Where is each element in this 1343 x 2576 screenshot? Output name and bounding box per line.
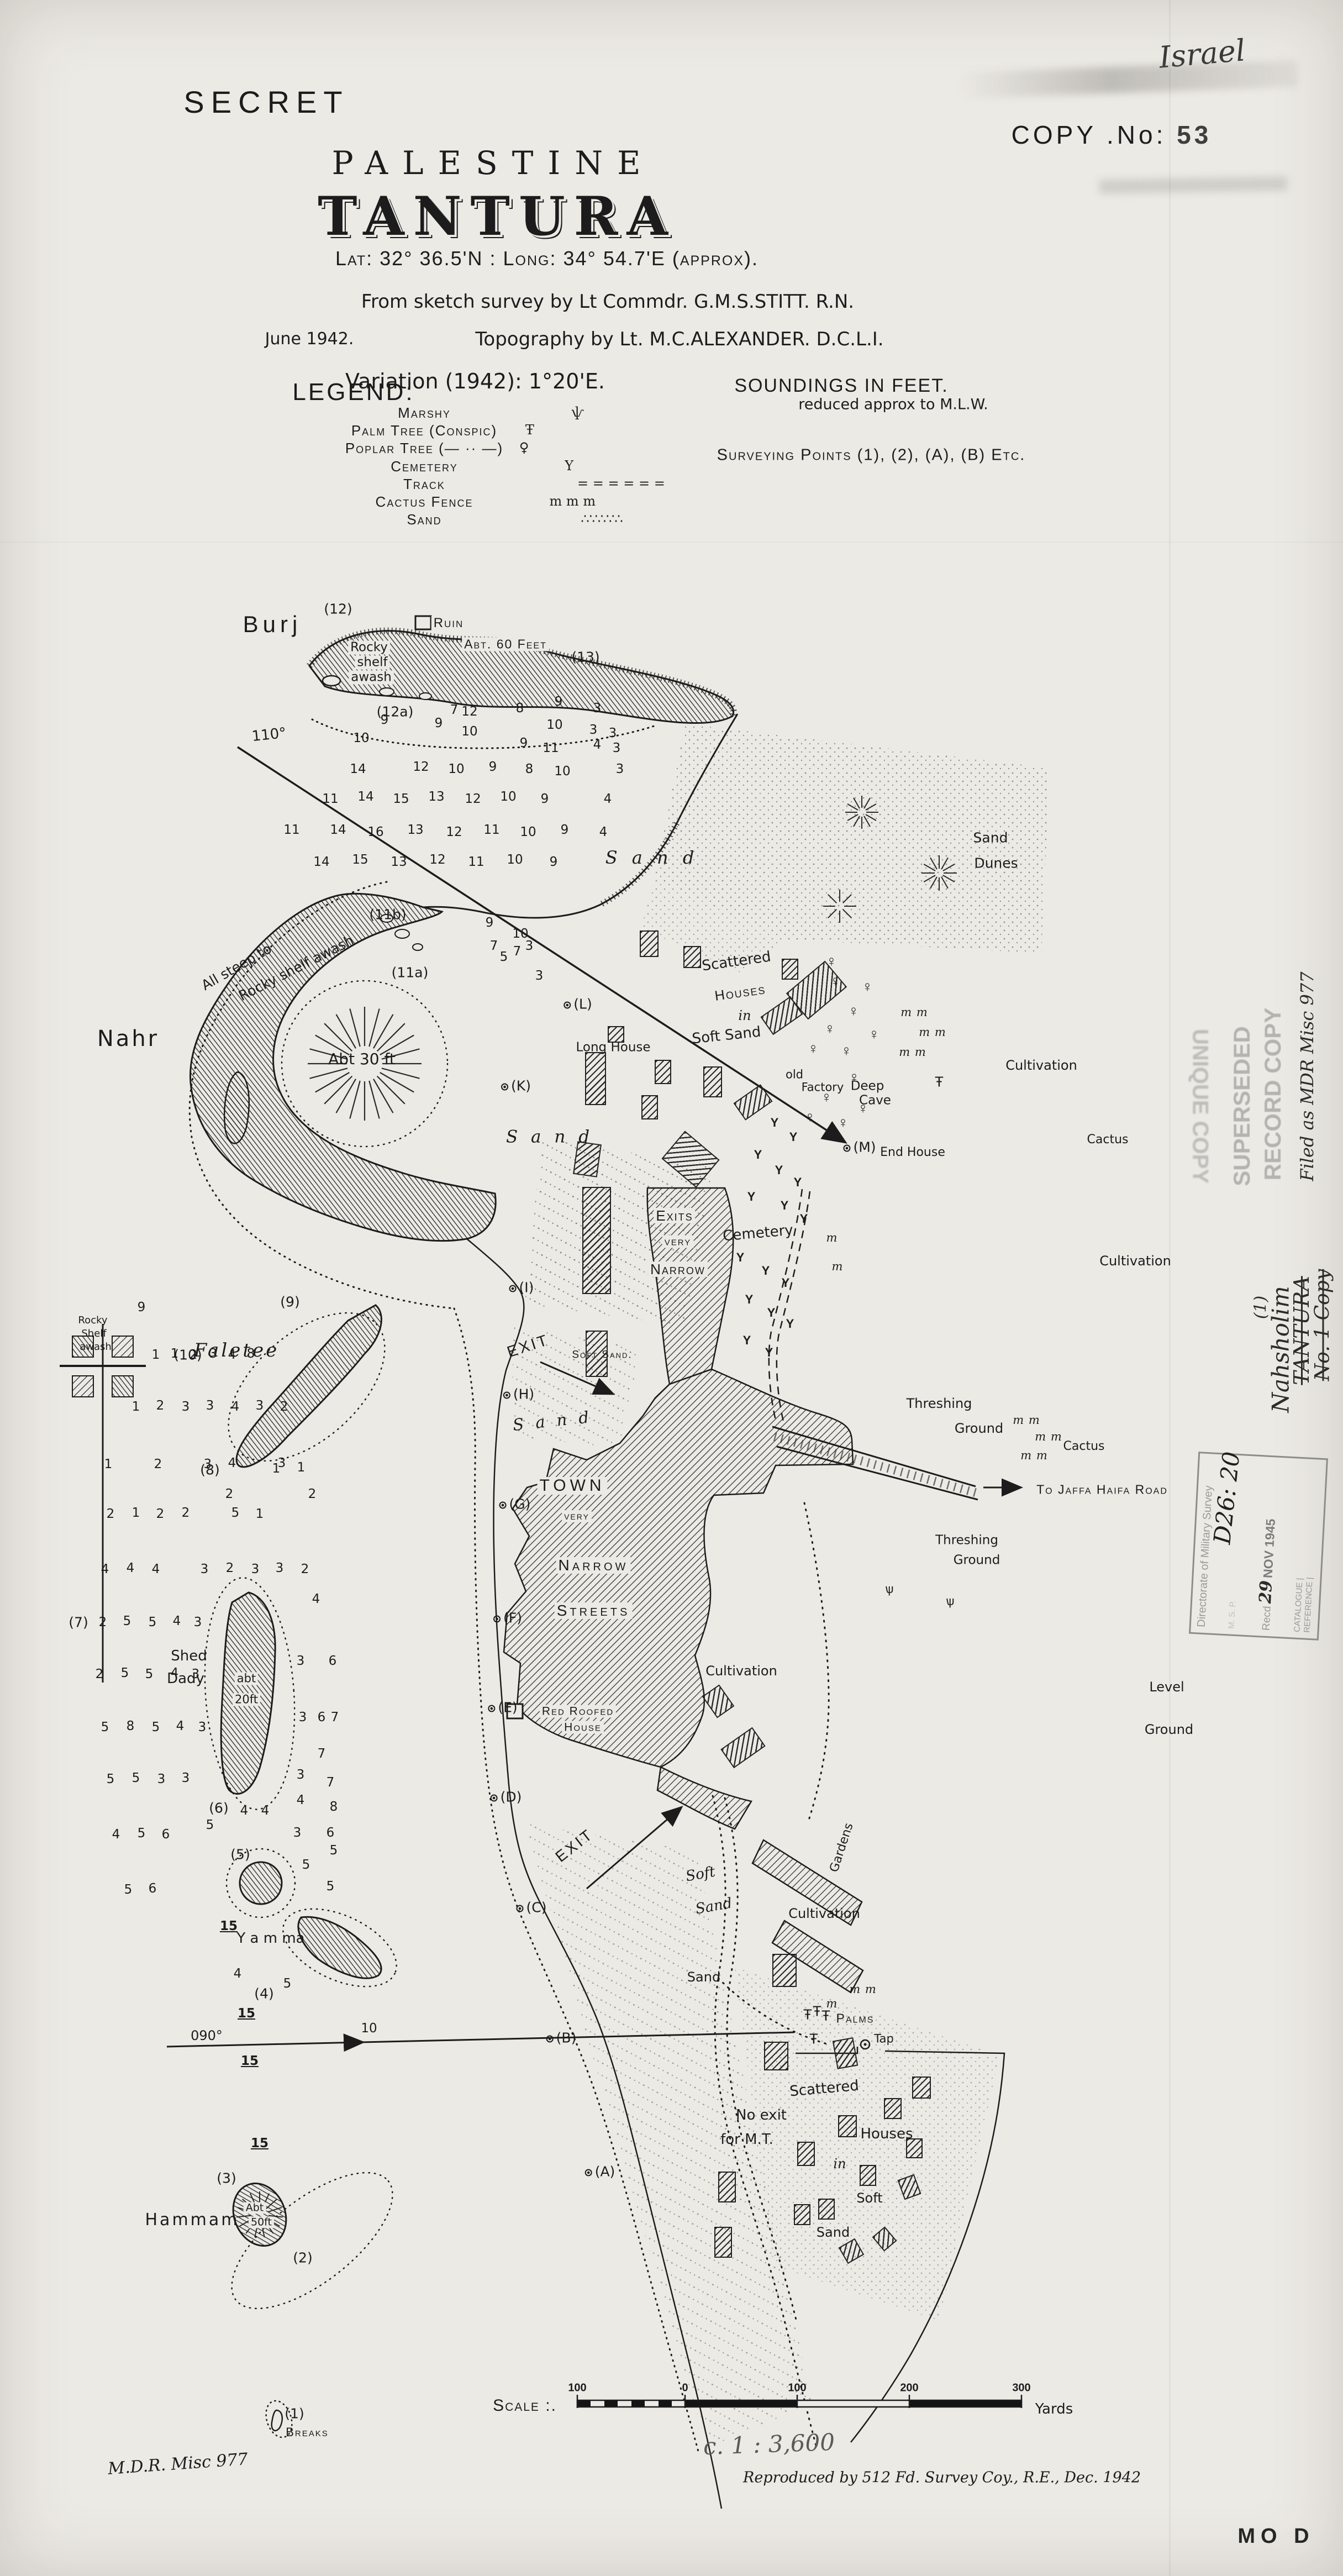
classification-secret: SECRET: [183, 87, 349, 118]
red-roofed-house-symbol: [507, 1704, 523, 1718]
mod-stamp: MO D: [1237, 2526, 1314, 2547]
hammam-dotted-ring: [210, 2148, 414, 2333]
burj-rock: [323, 676, 340, 686]
scale-unit: Yards: [1035, 2402, 1073, 2416]
legend-heading: LEGEND:: [292, 380, 414, 404]
paper-crease: [0, 542, 1343, 543]
tap-symbol-dot: [864, 2043, 867, 2046]
stamp-directorate-line: Directorate of Military Survey: [1195, 1459, 1217, 1628]
paper-crease: [1169, 0, 1171, 2576]
scale-ratio-handwritten: c. 1 : 3,600: [703, 2431, 835, 2458]
copy-label: COPY .No:: [1012, 120, 1167, 149]
breaks-rock: [272, 2410, 282, 2431]
gardens-strip-1: [752, 1840, 862, 1925]
soundings-heading: SOUNDINGS IN FEET.: [734, 376, 948, 395]
yamma-island: [298, 1917, 381, 1978]
surveying-points-note: Surveying Points (1), (2), (A), (B) Etc.: [717, 448, 1026, 464]
east-boundary-dotted: [804, 1503, 829, 1823]
yamma-islet: [240, 1862, 282, 1904]
superseded-stamp: SUPERSEDED: [1229, 1026, 1255, 1186]
topography-credit-line: Topography by Lt. M.C.ALEXANDER. D.C.L.I…: [475, 330, 883, 349]
lagoon-rock-sunburst: [308, 1007, 422, 1121]
shed-dady-island: [221, 1592, 275, 1794]
beach-ridges: [511, 1326, 641, 1448]
stamp-recd-day: 29: [1256, 1580, 1276, 1604]
faletee-island: [236, 1305, 381, 1467]
copy-number: 53: [1177, 120, 1212, 149]
bay-islet: [395, 929, 409, 938]
breaks-islet: [262, 2398, 297, 2441]
burj-rock: [380, 688, 394, 696]
page-title: TANTURA: [318, 190, 677, 243]
region-title: PALESTINE: [332, 147, 655, 179]
burj-rock: [419, 693, 431, 700]
burj-dotted-edge: [312, 719, 657, 748]
unique-copy-stamp: UNIQUE COPY: [1188, 1029, 1213, 1184]
reproduction-credit: Reproduced by 512 Fd. Survey Coy., R.E.,…: [743, 2470, 1141, 2485]
coordinates-line: Lat: 32° 36.5'N : Long: 34° 54.7'E (appr…: [335, 249, 759, 269]
town-se-arm: [657, 1767, 751, 1829]
copy-count-annotation: (1): [1251, 1296, 1271, 1319]
cemetery-track: [769, 1189, 810, 1421]
map-drawing: [0, 0, 1343, 2576]
stamp-received-line: Recd 29 NOV 1945: [1255, 1462, 1283, 1631]
survey-date: June 1942.: [265, 331, 354, 348]
lagoon-dotted-ring: [282, 981, 447, 1147]
compass-mark: [60, 1324, 146, 1683]
survey-directorate-stamp: Directorate of Military Survey M. S. P. …: [1189, 1452, 1328, 1641]
ruin-building: [415, 616, 431, 629]
copy-number-line: COPY .No: 53: [1012, 122, 1212, 148]
filed-as-annotation: Filed as MDR Misc 977: [1297, 971, 1318, 1181]
hammam-island: [224, 2175, 296, 2254]
map-sheet: SECRET Israel COPY .No: 53 PALESTINE TAN…: [0, 0, 1343, 2576]
bay-islet: [381, 914, 393, 922]
tantura-crossed-annotation: TANTURA: [1289, 1276, 1314, 1385]
survey-credit-line: From sketch survey by Lt Commdr. G.M.S.S…: [361, 292, 854, 311]
stamp-recd-date: NOV 1945: [1261, 1518, 1278, 1579]
record-copy-stamp: RECORD COPY: [1260, 1008, 1286, 1181]
gardens-strip-2: [772, 1921, 863, 1993]
stamp-recd-label: Recd: [1261, 1606, 1273, 1631]
nahr-bay-spit: [190, 893, 496, 1240]
no1-copy-annotation: No. 1 Copy: [1312, 1269, 1334, 1381]
soundings-subnote: reduced approx to M.L.W.: [798, 397, 988, 412]
bay-islet: [413, 944, 423, 950]
scale-label: Scale :.: [493, 2398, 557, 2414]
town-north-lobe: [647, 1188, 733, 1384]
